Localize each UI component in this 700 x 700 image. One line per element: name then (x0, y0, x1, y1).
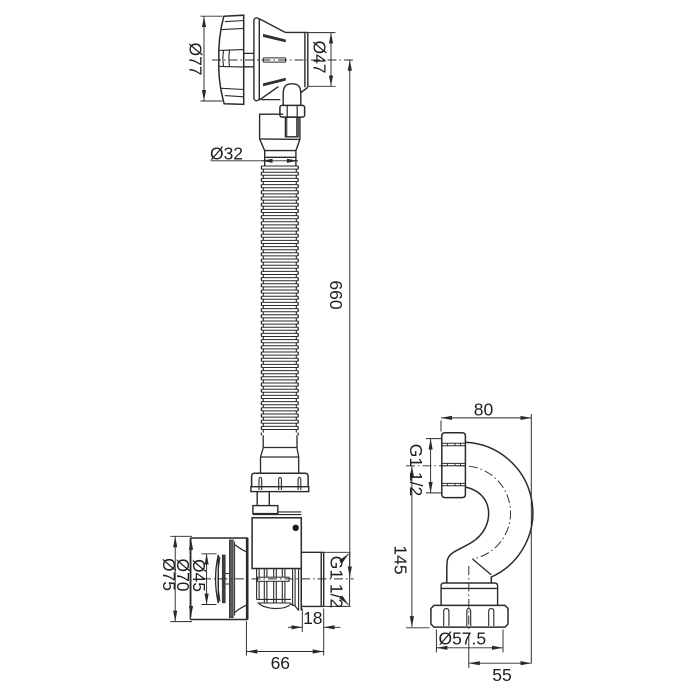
svg-text:80: 80 (474, 399, 494, 419)
svg-text:G1 1/2: G1 1/2 (406, 444, 426, 497)
svg-text:Ø32: Ø32 (210, 144, 243, 164)
svg-text:Ø45: Ø45 (189, 559, 209, 592)
svg-text:Ø47: Ø47 (310, 40, 330, 73)
svg-text:145: 145 (391, 545, 411, 574)
svg-text:G1 1/2: G1 1/2 (327, 556, 347, 609)
svg-text:660: 660 (326, 280, 346, 309)
svg-text:18: 18 (303, 608, 322, 628)
svg-text:Ø57.5: Ø57.5 (438, 629, 486, 649)
svg-text:Ø77: Ø77 (186, 42, 206, 75)
svg-text:55: 55 (492, 665, 511, 685)
svg-text:66: 66 (271, 653, 290, 673)
